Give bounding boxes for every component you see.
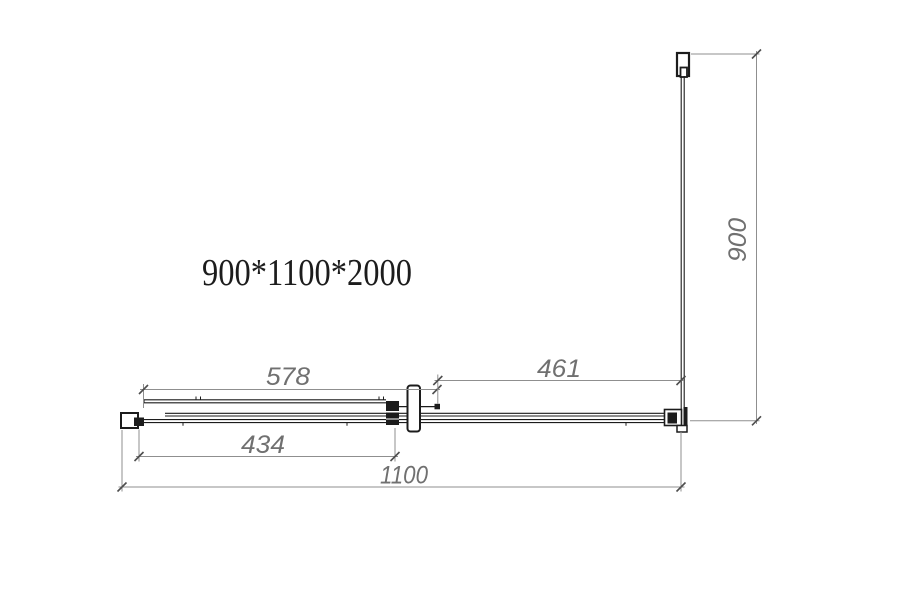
wall-bracket-top (677, 53, 689, 77)
drawing-title: 900*1100*2000 (202, 252, 412, 294)
dim-461-label: 461 (537, 355, 581, 383)
side-glass-panel (681, 76, 684, 410)
dim-461: 461 (433, 355, 685, 404)
dim-900: 900 (690, 50, 761, 426)
dim-1100-label: 1100 (380, 462, 428, 490)
bottom-track-rail (138, 420, 665, 426)
wall-profile-left (121, 413, 144, 428)
dim-900-label: 900 (724, 218, 752, 262)
dim-1100: 1100 (118, 430, 686, 492)
shower-enclosure-plan-drawing: 578 461 434 (0, 0, 900, 590)
dim-434-label: 434 (241, 431, 285, 459)
sliding-door-panel (144, 397, 386, 403)
roller-block (386, 401, 399, 425)
stop-pin (435, 404, 441, 410)
door-assembly (121, 386, 665, 432)
dim-578-label: 578 (266, 363, 310, 391)
cad-drawing-page: 578 461 434 (0, 0, 900, 590)
side-panel (665, 53, 690, 432)
corner-bracket (665, 407, 688, 432)
dim-434: 434 (135, 428, 400, 462)
door-handle-knob (408, 386, 421, 432)
